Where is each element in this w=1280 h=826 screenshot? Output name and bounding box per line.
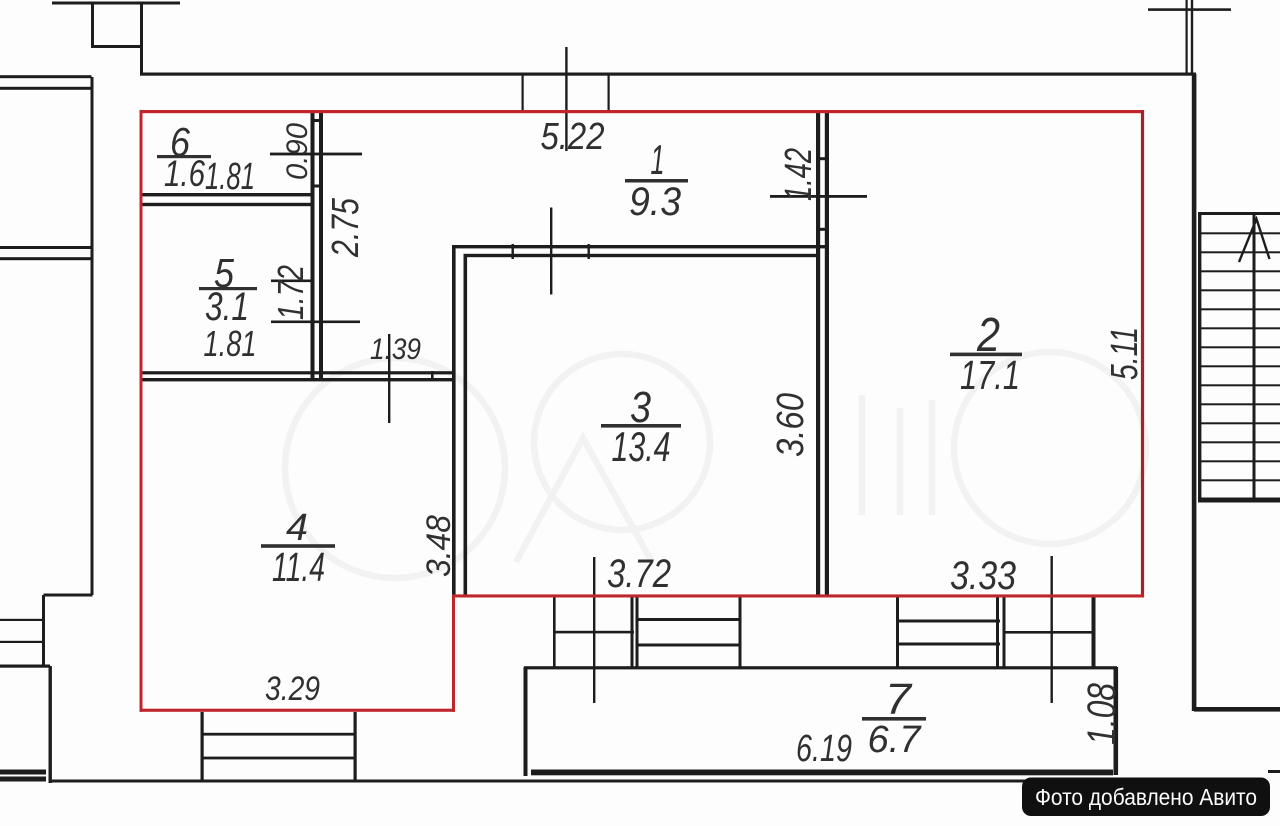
svg-text:9.3: 9.3 [629,180,681,224]
svg-text:1.81: 1.81 [204,323,257,364]
svg-text:4: 4 [286,507,308,549]
svg-text:5.11: 5.11 [1104,327,1146,380]
svg-text:1.42: 1.42 [778,148,820,201]
svg-text:3.29: 3.29 [265,670,320,708]
svg-text:0.90: 0.90 [281,123,314,180]
svg-text:2.75: 2.75 [325,197,367,257]
svg-text:5.22: 5.22 [541,116,605,158]
svg-text:17.1: 17.1 [960,352,1020,398]
svg-text:3.48: 3.48 [420,515,458,577]
svg-text:6.7: 6.7 [868,719,923,761]
svg-text:3.33: 3.33 [950,554,1016,598]
svg-text:3.72: 3.72 [607,552,671,596]
svg-text:13.4: 13.4 [612,423,671,470]
svg-text:7: 7 [885,675,913,724]
svg-text:1.39: 1.39 [370,333,421,366]
svg-text:6.19: 6.19 [796,728,852,770]
svg-text:1.72: 1.72 [270,265,311,320]
svg-text:Фото добавлено Авито: Фото добавлено Авито [1035,784,1257,810]
svg-text:11.4: 11.4 [272,544,325,590]
svg-text:1: 1 [651,136,665,183]
svg-text:1.08: 1.08 [1080,682,1124,745]
svg-text:1.81: 1.81 [205,156,255,198]
svg-text:3.60: 3.60 [770,393,812,457]
svg-text:1.6: 1.6 [164,153,205,194]
